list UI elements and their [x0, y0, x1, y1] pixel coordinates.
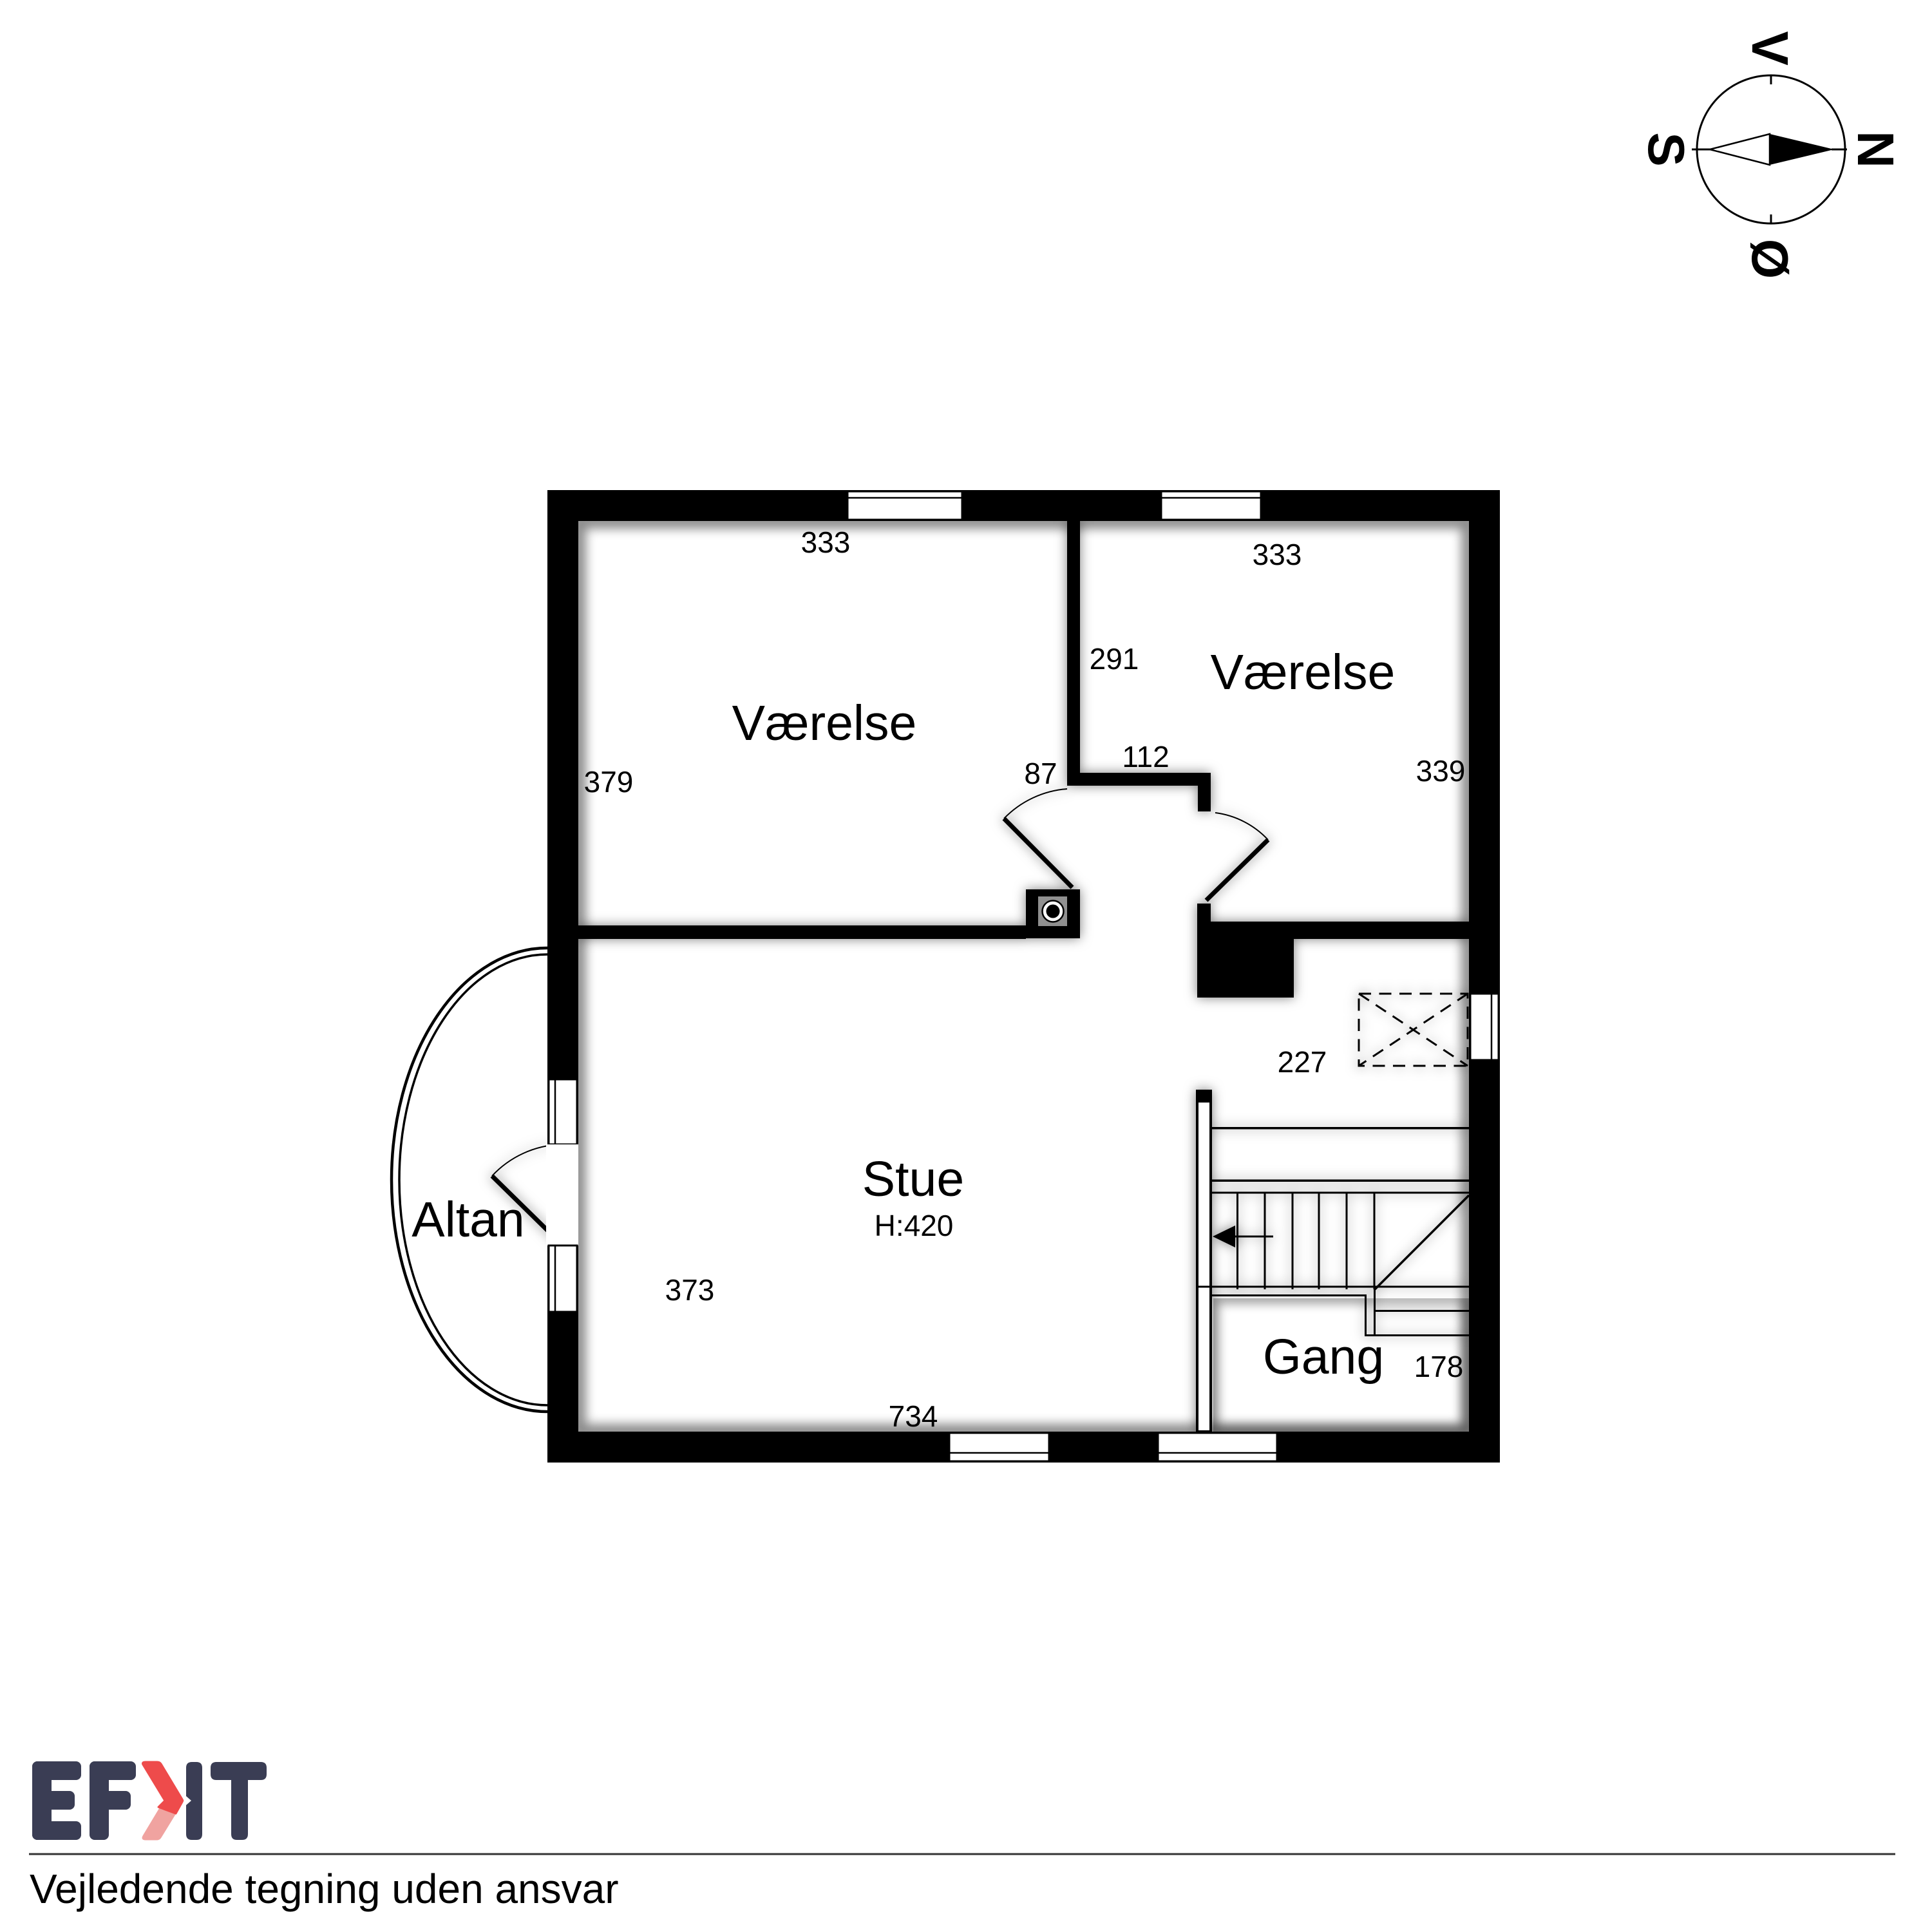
svg-text:Værelse: Værelse: [732, 696, 917, 751]
svg-text:Værelse: Værelse: [1211, 645, 1396, 700]
svg-text:Altan: Altan: [412, 1192, 525, 1247]
svg-text:Vejledende tegning uden ansvar: Vejledende tegning uden ansvar: [30, 1866, 619, 1912]
svg-text:373: 373: [665, 1273, 715, 1307]
svg-text:333: 333: [1253, 538, 1302, 571]
svg-text:Gang: Gang: [1263, 1329, 1384, 1385]
svg-text:Ø: Ø: [1741, 239, 1799, 279]
svg-text:H:420: H:420: [875, 1209, 954, 1242]
svg-text:N: N: [1847, 131, 1904, 168]
svg-text:V: V: [1741, 31, 1799, 65]
svg-text:87: 87: [1024, 757, 1057, 790]
svg-text:227: 227: [1278, 1045, 1327, 1079]
svg-text:339: 339: [1416, 754, 1466, 788]
svg-text:734: 734: [889, 1399, 938, 1433]
svg-text:S: S: [1638, 132, 1695, 166]
svg-text:333: 333: [801, 526, 851, 559]
svg-text:Stue: Stue: [862, 1151, 964, 1207]
svg-text:291: 291: [1090, 642, 1139, 676]
svg-text:379: 379: [584, 765, 634, 799]
svg-text:178: 178: [1414, 1350, 1464, 1383]
svg-text:112: 112: [1122, 740, 1169, 773]
